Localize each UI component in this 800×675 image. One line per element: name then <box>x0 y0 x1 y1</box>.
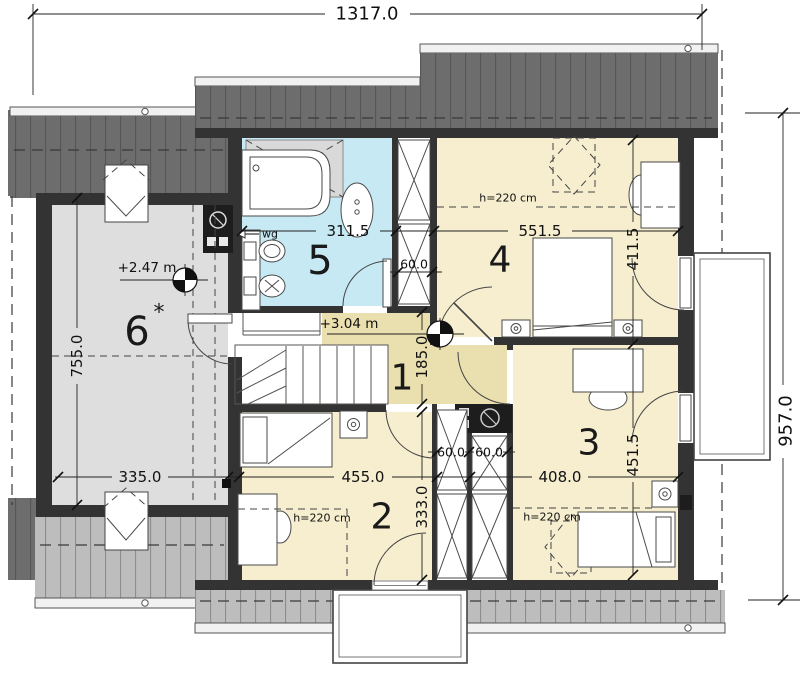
room-number-attic: 6 <box>124 309 149 355</box>
nightstand-bedroom2 <box>340 411 367 438</box>
dim-closet-right: 60.0 <box>475 445 503 460</box>
note-height-bedroom3: h=220 cm <box>523 511 580 524</box>
nightstand-bedroom3 <box>652 481 678 507</box>
room-number-bedroom2: 2 <box>371 497 394 538</box>
roof-window-top <box>103 160 149 222</box>
label-vent: wg <box>262 228 278 241</box>
dim-closet-top: 60.0 <box>400 257 428 272</box>
roof-top-right <box>420 44 718 135</box>
dim-bedroom3-depth: 451.5 <box>624 434 642 477</box>
chimney-block-bath <box>203 205 233 253</box>
stairs-area <box>235 345 388 404</box>
floor-plan-drawing: 1317.0 957.0 311.5 551.5 60.0 411.5 451.… <box>0 0 800 675</box>
dim-attic-depth: 755.0 <box>68 335 86 378</box>
dim-bedroom2-depth: 333.0 <box>413 486 431 529</box>
stair-landing-area <box>242 312 322 345</box>
dim-bedroom4-depth: 411.5 <box>624 228 642 271</box>
roof-window-bottom <box>103 488 149 550</box>
closet-middle-left <box>437 410 467 578</box>
bathtub <box>242 150 330 216</box>
level-attic: +2.47 m <box>118 260 177 276</box>
note-height-bedroom4: h=220 cm <box>479 192 536 205</box>
balcony-right <box>694 253 770 460</box>
dim-overall-height: 957.0 <box>776 395 797 447</box>
floor-plan-page: 1317.0 957.0 311.5 551.5 60.0 411.5 451.… <box>0 0 800 675</box>
bed-single-bedroom2 <box>240 413 332 467</box>
dim-closet-left: 60.0 <box>437 445 465 460</box>
dim-overall-width: 1317.0 <box>336 4 399 25</box>
dim-attic-width: 335.0 <box>119 468 162 486</box>
bidet <box>244 275 285 297</box>
wall-flue-small <box>680 495 692 510</box>
bed-double <box>533 238 612 337</box>
level-hall: +3.04 m <box>320 316 379 332</box>
room-number-hall: 1 <box>391 358 414 399</box>
dim-bedroom3-width: 408.0 <box>539 468 582 486</box>
room-number-attic-star: * <box>154 301 165 326</box>
bed-single-bedroom3 <box>578 512 675 567</box>
room-number-bathroom: 5 <box>307 238 332 284</box>
nightstand-right <box>614 320 642 337</box>
nightstand-left <box>502 320 530 337</box>
dim-bathroom-width: 311.5 <box>327 222 370 240</box>
room-number-bedroom4: 4 <box>489 240 512 281</box>
dim-bedroom2-width: 455.0 <box>342 468 385 486</box>
toilet <box>244 240 285 262</box>
balcony-bottom <box>333 581 467 663</box>
note-height-bedroom2: h=220 cm <box>293 512 350 525</box>
dim-hall-depth: 185.0 <box>413 336 431 379</box>
room-number-bedroom3: 3 <box>578 423 601 464</box>
dim-bedroom4-width: 551.5 <box>519 222 562 240</box>
